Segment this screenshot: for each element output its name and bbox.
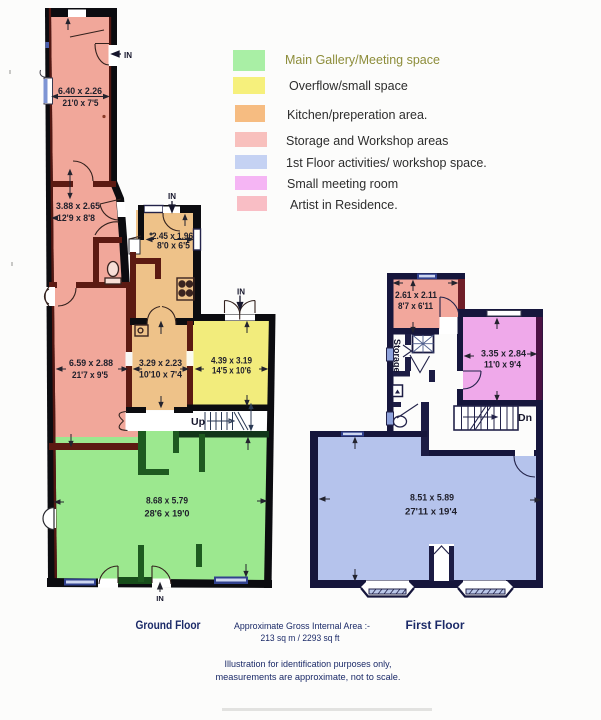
svg-text:21'0 x 7'5: 21'0 x 7'5 (63, 98, 99, 108)
svg-text:Artist in Residence.: Artist in Residence. (290, 198, 398, 212)
svg-text:1st Floor activities/ workshop: 1st Floor activities/ workshop space. (286, 156, 487, 170)
svg-text:Approximate Gross Internal Are: Approximate Gross Internal Area :- (234, 621, 370, 632)
svg-text:IN: IN (156, 594, 164, 603)
svg-text:8.51 x 5.89: 8.51 x 5.89 (410, 493, 454, 503)
svg-text:Kitchen/preperation area.: Kitchen/preperation area. (287, 108, 427, 122)
svg-text:8.68 x 5.79: 8.68 x 5.79 (146, 496, 188, 506)
svg-text:2.45 x 1.96: 2.45 x 1.96 (152, 231, 193, 241)
svg-text:8'7 x 6'11: 8'7 x 6'11 (398, 301, 433, 311)
svg-text:IN: IN (168, 192, 176, 201)
svg-text:28'6 x 19'0: 28'6 x 19'0 (145, 509, 190, 519)
svg-text:6.40 x 2.26: 6.40 x 2.26 (58, 86, 102, 96)
svg-text:3.35 x 2.84: 3.35 x 2.84 (481, 349, 526, 359)
svg-text:Illustration for identificatio: Illustration for identification purposes… (225, 659, 392, 670)
svg-text:14'5 x 10'6: 14'5 x 10'6 (212, 366, 251, 376)
svg-text:2.61 x 2.11: 2.61 x 2.11 (395, 290, 437, 300)
svg-text:213 sq m / 2293 sq ft: 213 sq m / 2293 sq ft (261, 633, 340, 644)
svg-text:Up: Up (191, 416, 205, 428)
svg-text:Ground Floor: Ground Floor (136, 618, 201, 632)
svg-text:4.39 x 3.19: 4.39 x 3.19 (211, 356, 252, 366)
svg-text:First Floor: First Floor (406, 618, 465, 632)
svg-text:Dn: Dn (518, 412, 532, 424)
svg-text:Main Gallery/Meeting space: Main Gallery/Meeting space (285, 53, 440, 67)
svg-text:3.29 x 2.23: 3.29 x 2.23 (139, 358, 182, 368)
svg-text:8'0 x 6'5: 8'0 x 6'5 (157, 241, 190, 251)
svg-text:6.59 x 2.88: 6.59 x 2.88 (69, 358, 113, 368)
svg-text:Storage: Storage (392, 339, 402, 373)
svg-text:Overflow/small space: Overflow/small space (289, 79, 408, 93)
svg-text:11'0 x 9'4: 11'0 x 9'4 (484, 360, 521, 370)
svg-text:Small meeting room: Small meeting room (287, 177, 398, 191)
svg-text:IN: IN (237, 288, 245, 297)
svg-text:Storage and Workshop areas: Storage and Workshop areas (286, 134, 448, 148)
svg-text:21'7 x 9'5: 21'7 x 9'5 (72, 370, 108, 380)
svg-text:measurements are approximate,: measurements are approximate, not to sca… (216, 672, 401, 683)
svg-text:10'10 x 7'4: 10'10 x 7'4 (139, 370, 182, 380)
svg-text:12'9 x 8'8: 12'9 x 8'8 (57, 213, 95, 223)
svg-text:IN: IN (124, 51, 132, 60)
svg-text:27'11 x 19'4: 27'11 x 19'4 (405, 507, 457, 517)
svg-text:3.88 x 2.65: 3.88 x 2.65 (56, 201, 100, 211)
